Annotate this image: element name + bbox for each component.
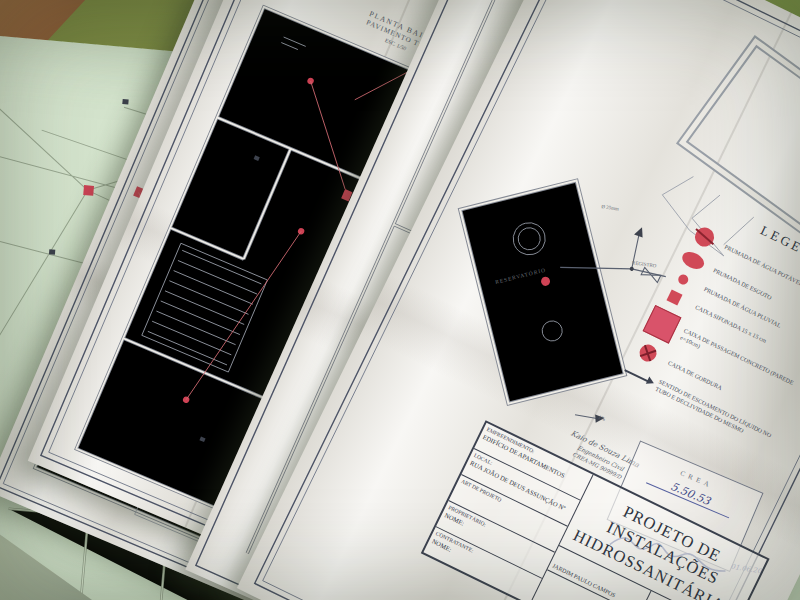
reservoir-room-drawing — [460, 181, 625, 404]
prumada-agua-pluvial-icon — [677, 273, 690, 286]
prumada-agua-potavel-icon — [691, 224, 716, 249]
caixa-de-gordura-icon — [636, 341, 659, 364]
green-sheet-red-box — [83, 185, 94, 196]
photo-blueprints-on-table: PLANTA BAIXA PAVIMENTO TIPO ESC. 1/50 — [0, 0, 800, 600]
caixa-sifonada-icon — [666, 290, 682, 306]
flow-direction-arrow-icon — [624, 369, 648, 382]
caixa-de-passagem-icon — [642, 305, 681, 344]
prumada-esgoto-icon — [679, 248, 706, 272]
